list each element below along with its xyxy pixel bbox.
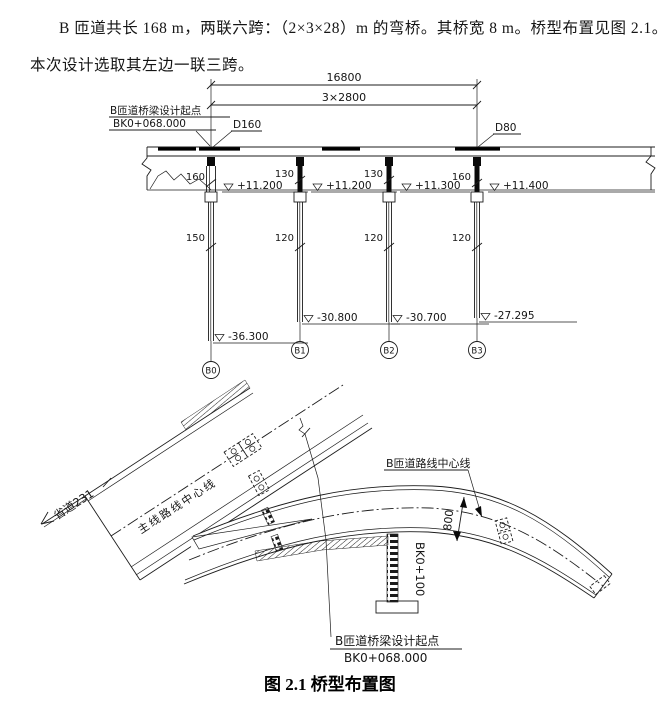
retaining-wall: BK0+100 bbox=[376, 534, 427, 613]
pier-b2-shaft-width: 120 bbox=[364, 233, 383, 244]
pier-b0-cap-width: 160 bbox=[186, 172, 205, 183]
pier-b0-shaft-width: 150 bbox=[186, 233, 205, 244]
elev-marker-b1-bottom: -30.800 bbox=[302, 312, 400, 324]
main-road-hatch bbox=[181, 380, 250, 430]
break-symbol-right bbox=[646, 147, 655, 190]
elev-b1-top-text: +11.200 bbox=[326, 180, 372, 192]
elev-marker-b0-bottom: -36.300 bbox=[213, 331, 308, 343]
elev-b2-top-text: +11.300 bbox=[415, 180, 461, 192]
ramp-width-text: 800 bbox=[441, 509, 456, 531]
dimension-total-length: 16800 bbox=[207, 71, 481, 89]
pier-b1-cap-width: 130 bbox=[275, 169, 294, 180]
pier-b3-shaft-width: 120 bbox=[452, 233, 471, 244]
station-label: BK0+100 bbox=[413, 542, 427, 596]
elev-b2-bottom-text: -30.700 bbox=[406, 312, 447, 324]
elev-b3-top-text: +11.400 bbox=[503, 180, 549, 192]
elev-b0-bottom-text: -36.300 bbox=[228, 331, 269, 343]
elevation-view: 16800 3×2800 B匝道桥梁设计起点 BK0+068.000 D160 bbox=[109, 71, 655, 379]
arrow-tick bbox=[103, 478, 111, 487]
elev-b3-bottom-text: -27.295 bbox=[494, 310, 535, 322]
start-point-text: B匝道桥梁设计起点 bbox=[110, 104, 201, 117]
plan-view: 省道231 主线路线中心线 bbox=[41, 380, 612, 665]
bridge-layout-figure: 16800 3×2800 B匝道桥梁设计起点 BK0+068.000 D160 bbox=[0, 0, 670, 702]
pier-b0-id: B0 bbox=[205, 367, 216, 377]
d80-text: D80 bbox=[495, 122, 516, 134]
plan-start-point-label: B匝道桥梁设计起点 BK0+068.000 bbox=[330, 633, 462, 665]
dimension-span-lengths: 3×2800 bbox=[207, 91, 481, 109]
plan-start-point-station: BK0+068.000 bbox=[344, 651, 427, 665]
main-road-label: 省道231 bbox=[51, 486, 96, 522]
main-road-pier-footprints bbox=[224, 434, 262, 467]
main-centerline-label: 主线路线中心线 bbox=[135, 475, 219, 536]
document-page: B 匝道共长 168 m，两联六跨：（2×3×28）m 的弯桥。其桥宽 8 m。… bbox=[0, 0, 670, 702]
elev-marker-b3-bottom: -27.295 bbox=[479, 310, 577, 322]
elev-b1-bottom-text: -30.800 bbox=[317, 312, 358, 324]
bottom-elevation-markers: -36.300 -30.800 -30.700 -27.295 bbox=[213, 310, 577, 343]
pier-b2-cap-width: 130 bbox=[364, 169, 383, 180]
elev-b0-top-text: +11.200 bbox=[237, 180, 283, 192]
pier-diameter-label-right: D80 bbox=[478, 122, 521, 147]
pier-diameter-label-left: D160 bbox=[213, 119, 262, 147]
pier-b1-shaft-width: 120 bbox=[275, 233, 294, 244]
elevation-start-point-label: B匝道桥梁设计起点 BK0+068.000 bbox=[109, 104, 230, 146]
figure-caption: 图 2.1 桥型布置图 bbox=[264, 674, 396, 694]
dim-spans-text: 3×2800 bbox=[322, 91, 366, 104]
ramp-centerline-text: B匝道路线中心线 bbox=[386, 456, 471, 470]
d160-text: D160 bbox=[233, 119, 261, 131]
break-symbol-left bbox=[142, 147, 151, 190]
bridge-deck bbox=[147, 147, 655, 156]
start-point-station-text: BK0+068.000 bbox=[113, 118, 186, 130]
pier-b3-id: B3 bbox=[471, 347, 482, 357]
plan-start-point-text: B匝道桥梁设计起点 bbox=[335, 633, 439, 648]
dim-total-text: 16800 bbox=[327, 71, 362, 84]
pier-b2-id: B2 bbox=[383, 347, 394, 357]
pier-b1-id: B1 bbox=[294, 347, 305, 357]
